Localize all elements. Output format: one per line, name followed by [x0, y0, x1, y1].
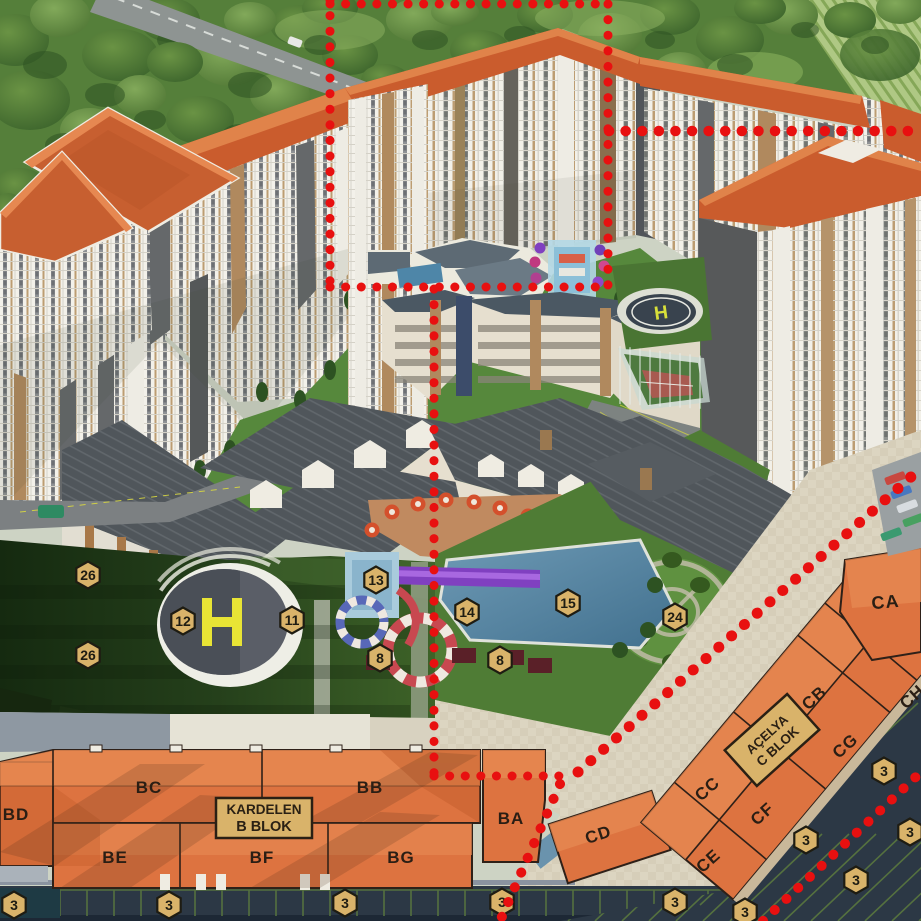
svg-text:3: 3 — [165, 897, 173, 913]
svg-text:BB: BB — [357, 778, 384, 797]
svg-text:3: 3 — [341, 895, 349, 911]
svg-text:3: 3 — [10, 897, 18, 913]
svg-text:11: 11 — [285, 612, 300, 628]
svg-text:BG: BG — [387, 848, 415, 867]
svg-text:8: 8 — [376, 650, 384, 666]
svg-text:H: H — [653, 302, 670, 325]
svg-text:24: 24 — [667, 609, 683, 625]
svg-text:3: 3 — [802, 832, 810, 848]
svg-text:KARDELEN: KARDELEN — [226, 802, 301, 817]
svg-text:3: 3 — [852, 872, 860, 888]
svg-text:3: 3 — [741, 904, 749, 920]
svg-text:13: 13 — [368, 572, 384, 588]
svg-text:CA: CA — [871, 591, 901, 613]
svg-text:14: 14 — [459, 604, 475, 620]
svg-text:12: 12 — [175, 613, 191, 629]
svg-text:BC: BC — [136, 778, 163, 797]
svg-text:3: 3 — [880, 763, 888, 779]
svg-text:26: 26 — [80, 567, 96, 583]
svg-text:BD: BD — [3, 805, 30, 824]
svg-text:8: 8 — [496, 652, 504, 668]
svg-text:26: 26 — [80, 647, 96, 663]
svg-text:B BLOK: B BLOK — [236, 819, 292, 835]
svg-text:3: 3 — [906, 824, 914, 840]
svg-text:15: 15 — [560, 595, 576, 611]
svg-text:BA: BA — [498, 809, 525, 828]
svg-text:BF: BF — [250, 848, 275, 867]
svg-text:BE: BE — [102, 848, 128, 867]
svg-text:3: 3 — [671, 894, 679, 910]
